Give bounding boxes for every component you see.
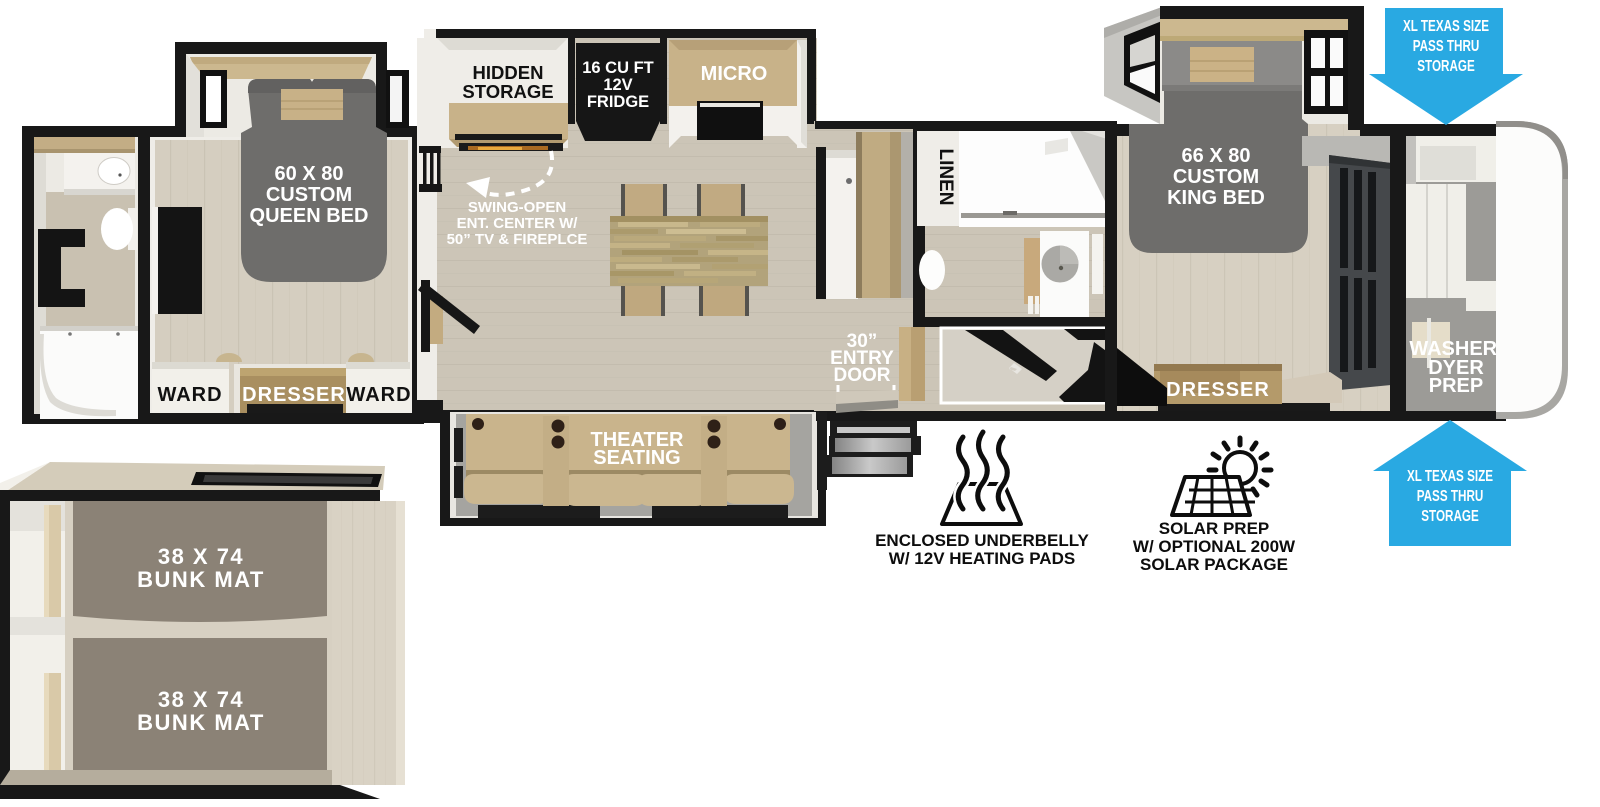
svg-text:BUNK MAT: BUNK MAT — [137, 710, 265, 735]
svg-text:ENCLOSED UNDERBELLY: ENCLOSED UNDERBELLY — [875, 531, 1089, 550]
svg-text:60 X 80: 60 X 80 — [275, 163, 344, 185]
svg-text:LINEN: LINEN — [935, 149, 956, 206]
svg-text:SOLAR PREP: SOLAR PREP — [1159, 519, 1270, 538]
svg-text:CUSTOM: CUSTOM — [1173, 166, 1259, 188]
svg-text:WARD: WARD — [157, 384, 222, 406]
svg-text:16 CU FT: 16 CU FT — [582, 59, 654, 77]
svg-text:SEATING: SEATING — [593, 447, 680, 469]
svg-text:BUNK MAT: BUNK MAT — [137, 567, 265, 592]
svg-text:XL TEXAS SIZE: XL TEXAS SIZE — [1403, 16, 1489, 34]
svg-text:DRESSER: DRESSER — [242, 384, 346, 406]
svg-text:WARD: WARD — [346, 384, 411, 406]
svg-text:W/ 12V HEATING PADS: W/ 12V HEATING PADS — [889, 549, 1075, 568]
svg-text:MICRO: MICRO — [701, 63, 768, 85]
svg-text:PASS THRU: PASS THRU — [1413, 36, 1480, 54]
svg-text:PASS THRU: PASS THRU — [1417, 486, 1484, 504]
svg-text:QUEEN BED: QUEEN BED — [250, 205, 369, 227]
svg-text:38 X 74: 38 X 74 — [158, 544, 244, 569]
svg-text:XL TEXAS SIZE: XL TEXAS SIZE — [1407, 466, 1493, 484]
svg-text:SOLAR PACKAGE: SOLAR PACKAGE — [1140, 555, 1288, 574]
svg-text:PREP: PREP — [1429, 375, 1483, 397]
svg-text:KING BED: KING BED — [1167, 187, 1265, 209]
svg-text:DOOR: DOOR — [834, 365, 891, 386]
svg-text:12V: 12V — [603, 76, 632, 94]
svg-text:38 X 74: 38 X 74 — [158, 687, 244, 712]
svg-text:STORAGE: STORAGE — [1417, 56, 1475, 74]
svg-text:FRIDGE: FRIDGE — [587, 93, 649, 111]
svg-text:ENT. CENTER W/: ENT. CENTER W/ — [457, 215, 579, 232]
svg-text:STORAGE: STORAGE — [1421, 506, 1479, 524]
svg-text:DRESSER: DRESSER — [1166, 379, 1270, 401]
svg-text:HIDDEN: HIDDEN — [473, 62, 544, 83]
svg-text:STORAGE: STORAGE — [462, 81, 553, 102]
svg-text:66 X 80: 66 X 80 — [1182, 145, 1251, 167]
svg-text:SWING-OPEN: SWING-OPEN — [468, 199, 566, 216]
svg-text:50” TV & FIREPLCE: 50” TV & FIREPLCE — [447, 231, 588, 248]
svg-text:CUSTOM: CUSTOM — [266, 184, 352, 206]
svg-text:W/ OPTIONAL 200W: W/ OPTIONAL 200W — [1133, 537, 1296, 556]
